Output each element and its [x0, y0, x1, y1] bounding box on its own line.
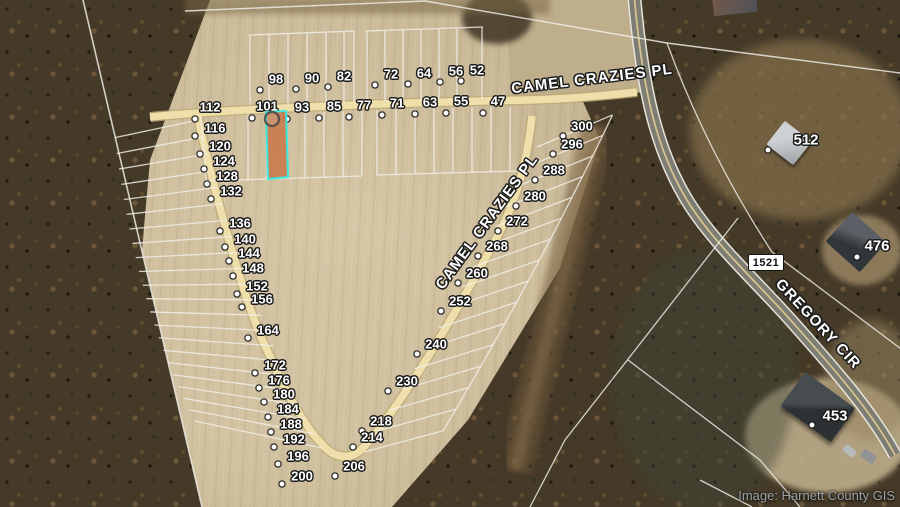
- aerial-map[interactable]: 9890827264565211210193857771635547116120…: [0, 0, 900, 507]
- map-attribution: Image: Harnett County GIS: [738, 488, 895, 503]
- well-symbol-icon: [265, 112, 279, 126]
- route-shield-1521: 1521: [748, 254, 784, 271]
